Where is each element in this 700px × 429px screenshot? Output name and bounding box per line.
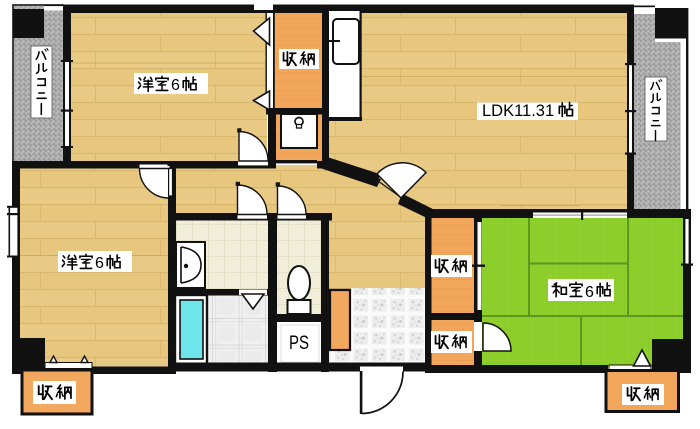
svg-text:6: 6 — [585, 284, 594, 301]
svg-text:6: 6 — [95, 255, 104, 272]
svg-text:LDK11.31: LDK11.31 — [482, 102, 554, 120]
svg-text:PS: PS — [289, 333, 309, 354]
svg-text:6: 6 — [171, 77, 180, 94]
